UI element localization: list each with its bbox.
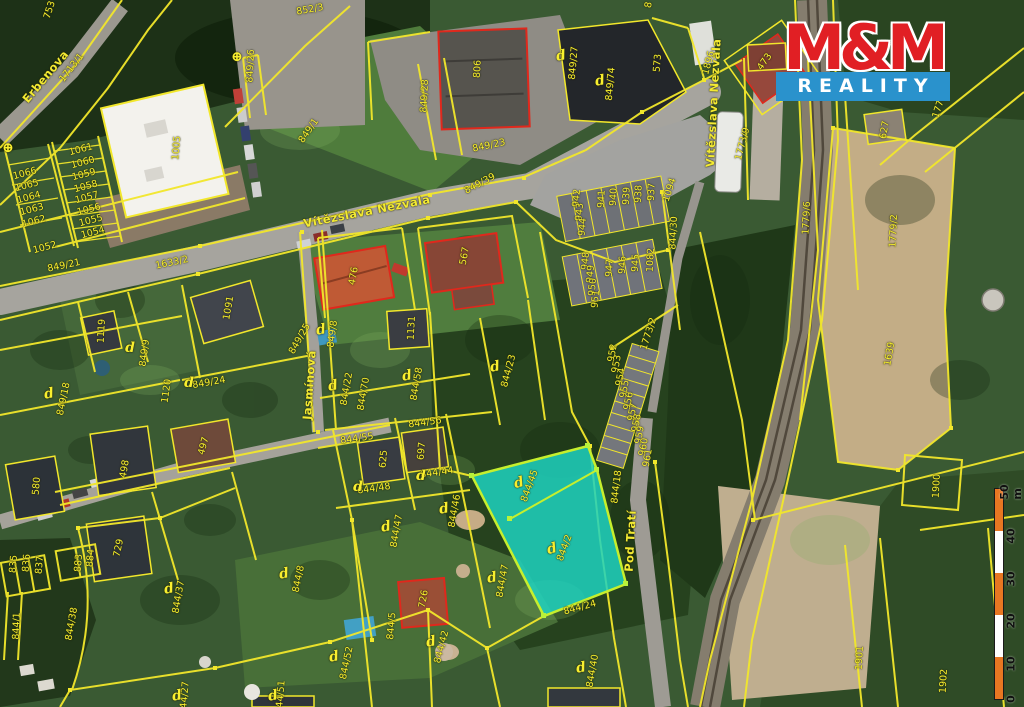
scale-segment bbox=[995, 615, 1003, 657]
scale-label: 20 bbox=[1005, 613, 1018, 628]
map-scale-bar bbox=[994, 488, 1004, 700]
scale-segment bbox=[995, 657, 1003, 699]
scale-label: 0 bbox=[1005, 695, 1018, 703]
cadastral-map[interactable]: ErbenovaVítězslava NezvalaVítězslava Nez… bbox=[0, 0, 1024, 707]
bus bbox=[715, 112, 744, 193]
logo-reality-bar: REALITY bbox=[776, 72, 950, 101]
tower bbox=[982, 289, 1004, 311]
scale-label: 30 bbox=[1005, 571, 1018, 586]
aerial-imagery bbox=[0, 0, 1024, 707]
scale-label: 10 bbox=[1005, 656, 1018, 671]
building-625 bbox=[357, 437, 404, 484]
scale-label: 50 m bbox=[998, 484, 1024, 499]
mm-reality-logo: M&M REALITY bbox=[768, 20, 958, 101]
building-580 bbox=[6, 456, 65, 520]
building-806 bbox=[438, 28, 529, 129]
building-726 bbox=[398, 578, 448, 628]
building-697 bbox=[401, 427, 448, 472]
building-1131 bbox=[387, 309, 430, 350]
scale-segment bbox=[995, 573, 1003, 615]
building-497 bbox=[171, 419, 236, 472]
scale-label: 40 bbox=[1005, 528, 1018, 543]
scale-segment bbox=[995, 531, 1003, 573]
building-498 bbox=[90, 426, 156, 495]
logo-mm-text: M&M bbox=[768, 20, 958, 76]
